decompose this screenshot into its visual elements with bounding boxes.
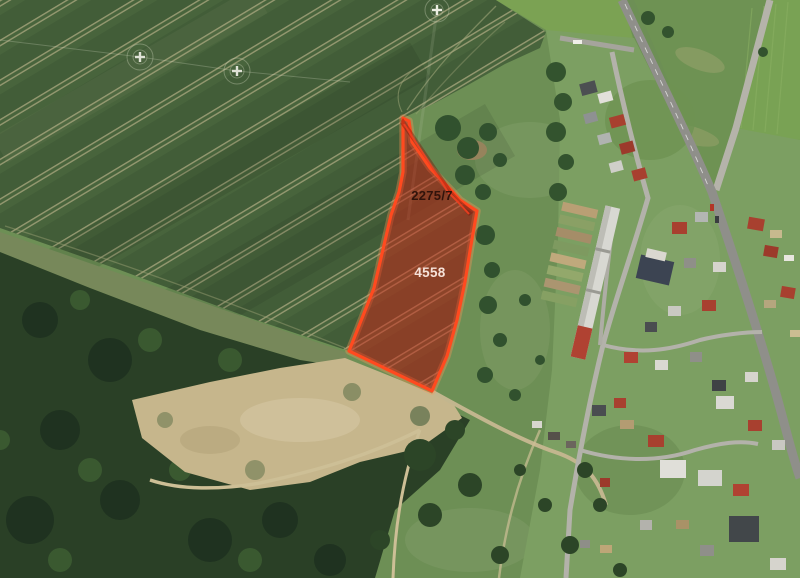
parcel-label-2275-7: 2275/7: [411, 188, 453, 203]
white-van: [573, 40, 582, 44]
satellite-map: 2275/7 4558: [0, 0, 800, 578]
parcel-label-4558: 4558: [414, 265, 445, 280]
car: [715, 216, 719, 223]
car: [710, 204, 714, 211]
map-viewport[interactable]: 2275/7 4558: [0, 0, 800, 578]
